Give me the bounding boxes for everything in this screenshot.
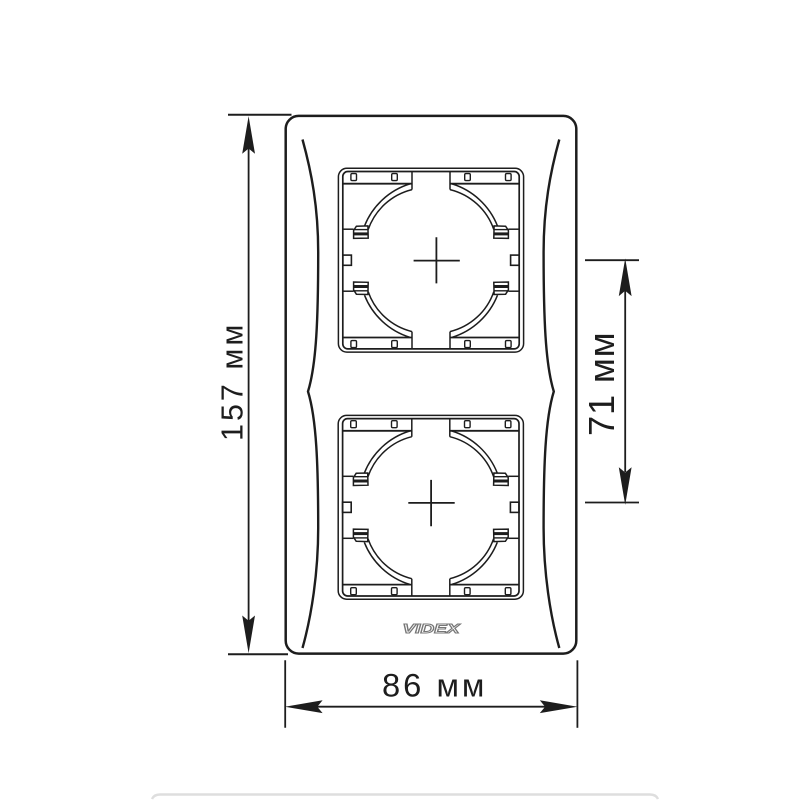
svg-text:VIDEX: VIDEX xyxy=(403,621,462,636)
svg-text:86 мм: 86 мм xyxy=(382,667,487,704)
svg-text:71 мм: 71 мм xyxy=(581,332,622,436)
svg-text:157 мм: 157 мм xyxy=(216,322,250,441)
